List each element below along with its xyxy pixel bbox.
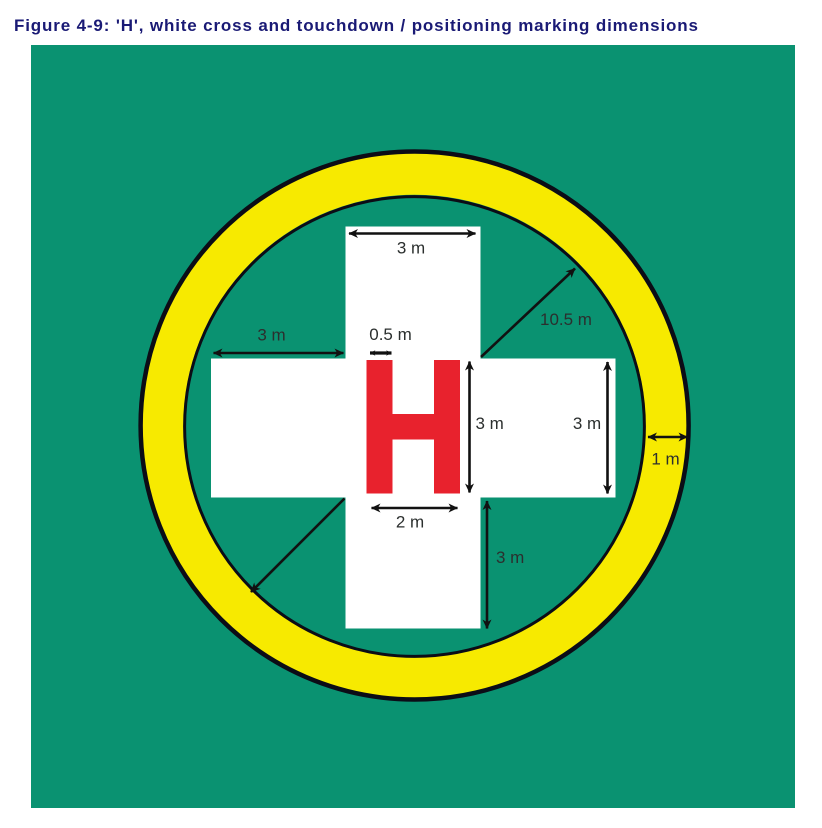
- svg-text:3 m: 3 m: [476, 414, 504, 433]
- svg-text:10.5 m: 10.5 m: [540, 310, 592, 329]
- svg-text:3 m: 3 m: [397, 239, 425, 258]
- svg-text:2 m: 2 m: [396, 513, 424, 532]
- svg-text:1 m: 1 m: [651, 450, 679, 469]
- svg-text:0.5 m: 0.5 m: [369, 325, 412, 344]
- svg-text:3 m: 3 m: [257, 326, 285, 345]
- svg-text:3 m: 3 m: [496, 548, 524, 567]
- svg-text:3 m: 3 m: [573, 414, 601, 433]
